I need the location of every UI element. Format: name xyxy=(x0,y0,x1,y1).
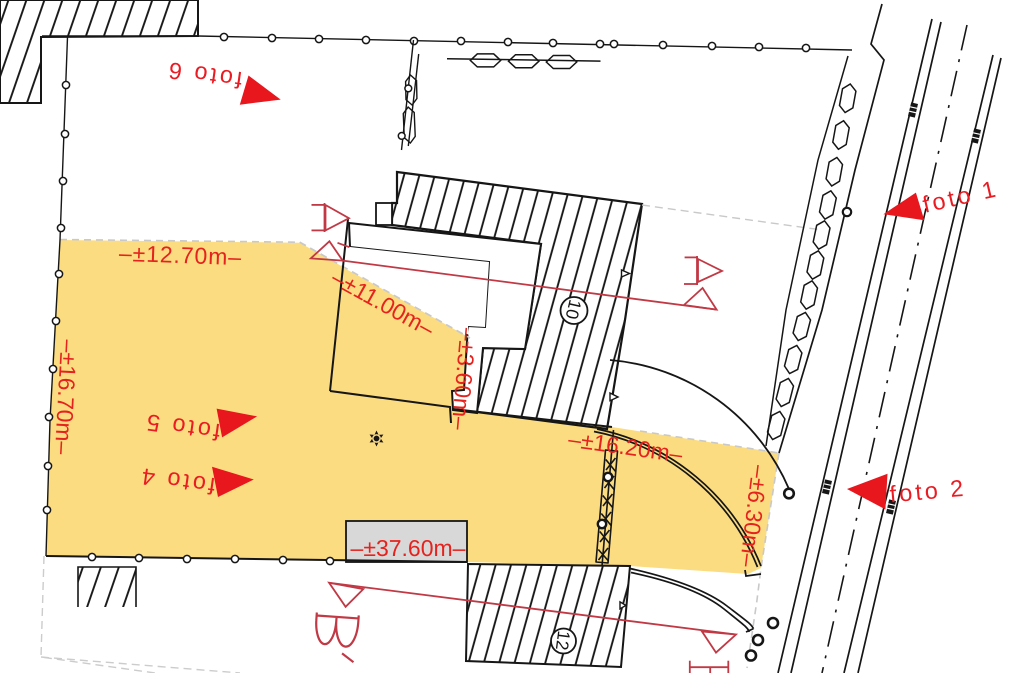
svg-text:12: 12 xyxy=(552,630,574,652)
svg-text:–±12.70m–: –±12.70m– xyxy=(119,240,243,270)
svg-text:–±37.60m–: –±37.60m– xyxy=(351,535,466,561)
